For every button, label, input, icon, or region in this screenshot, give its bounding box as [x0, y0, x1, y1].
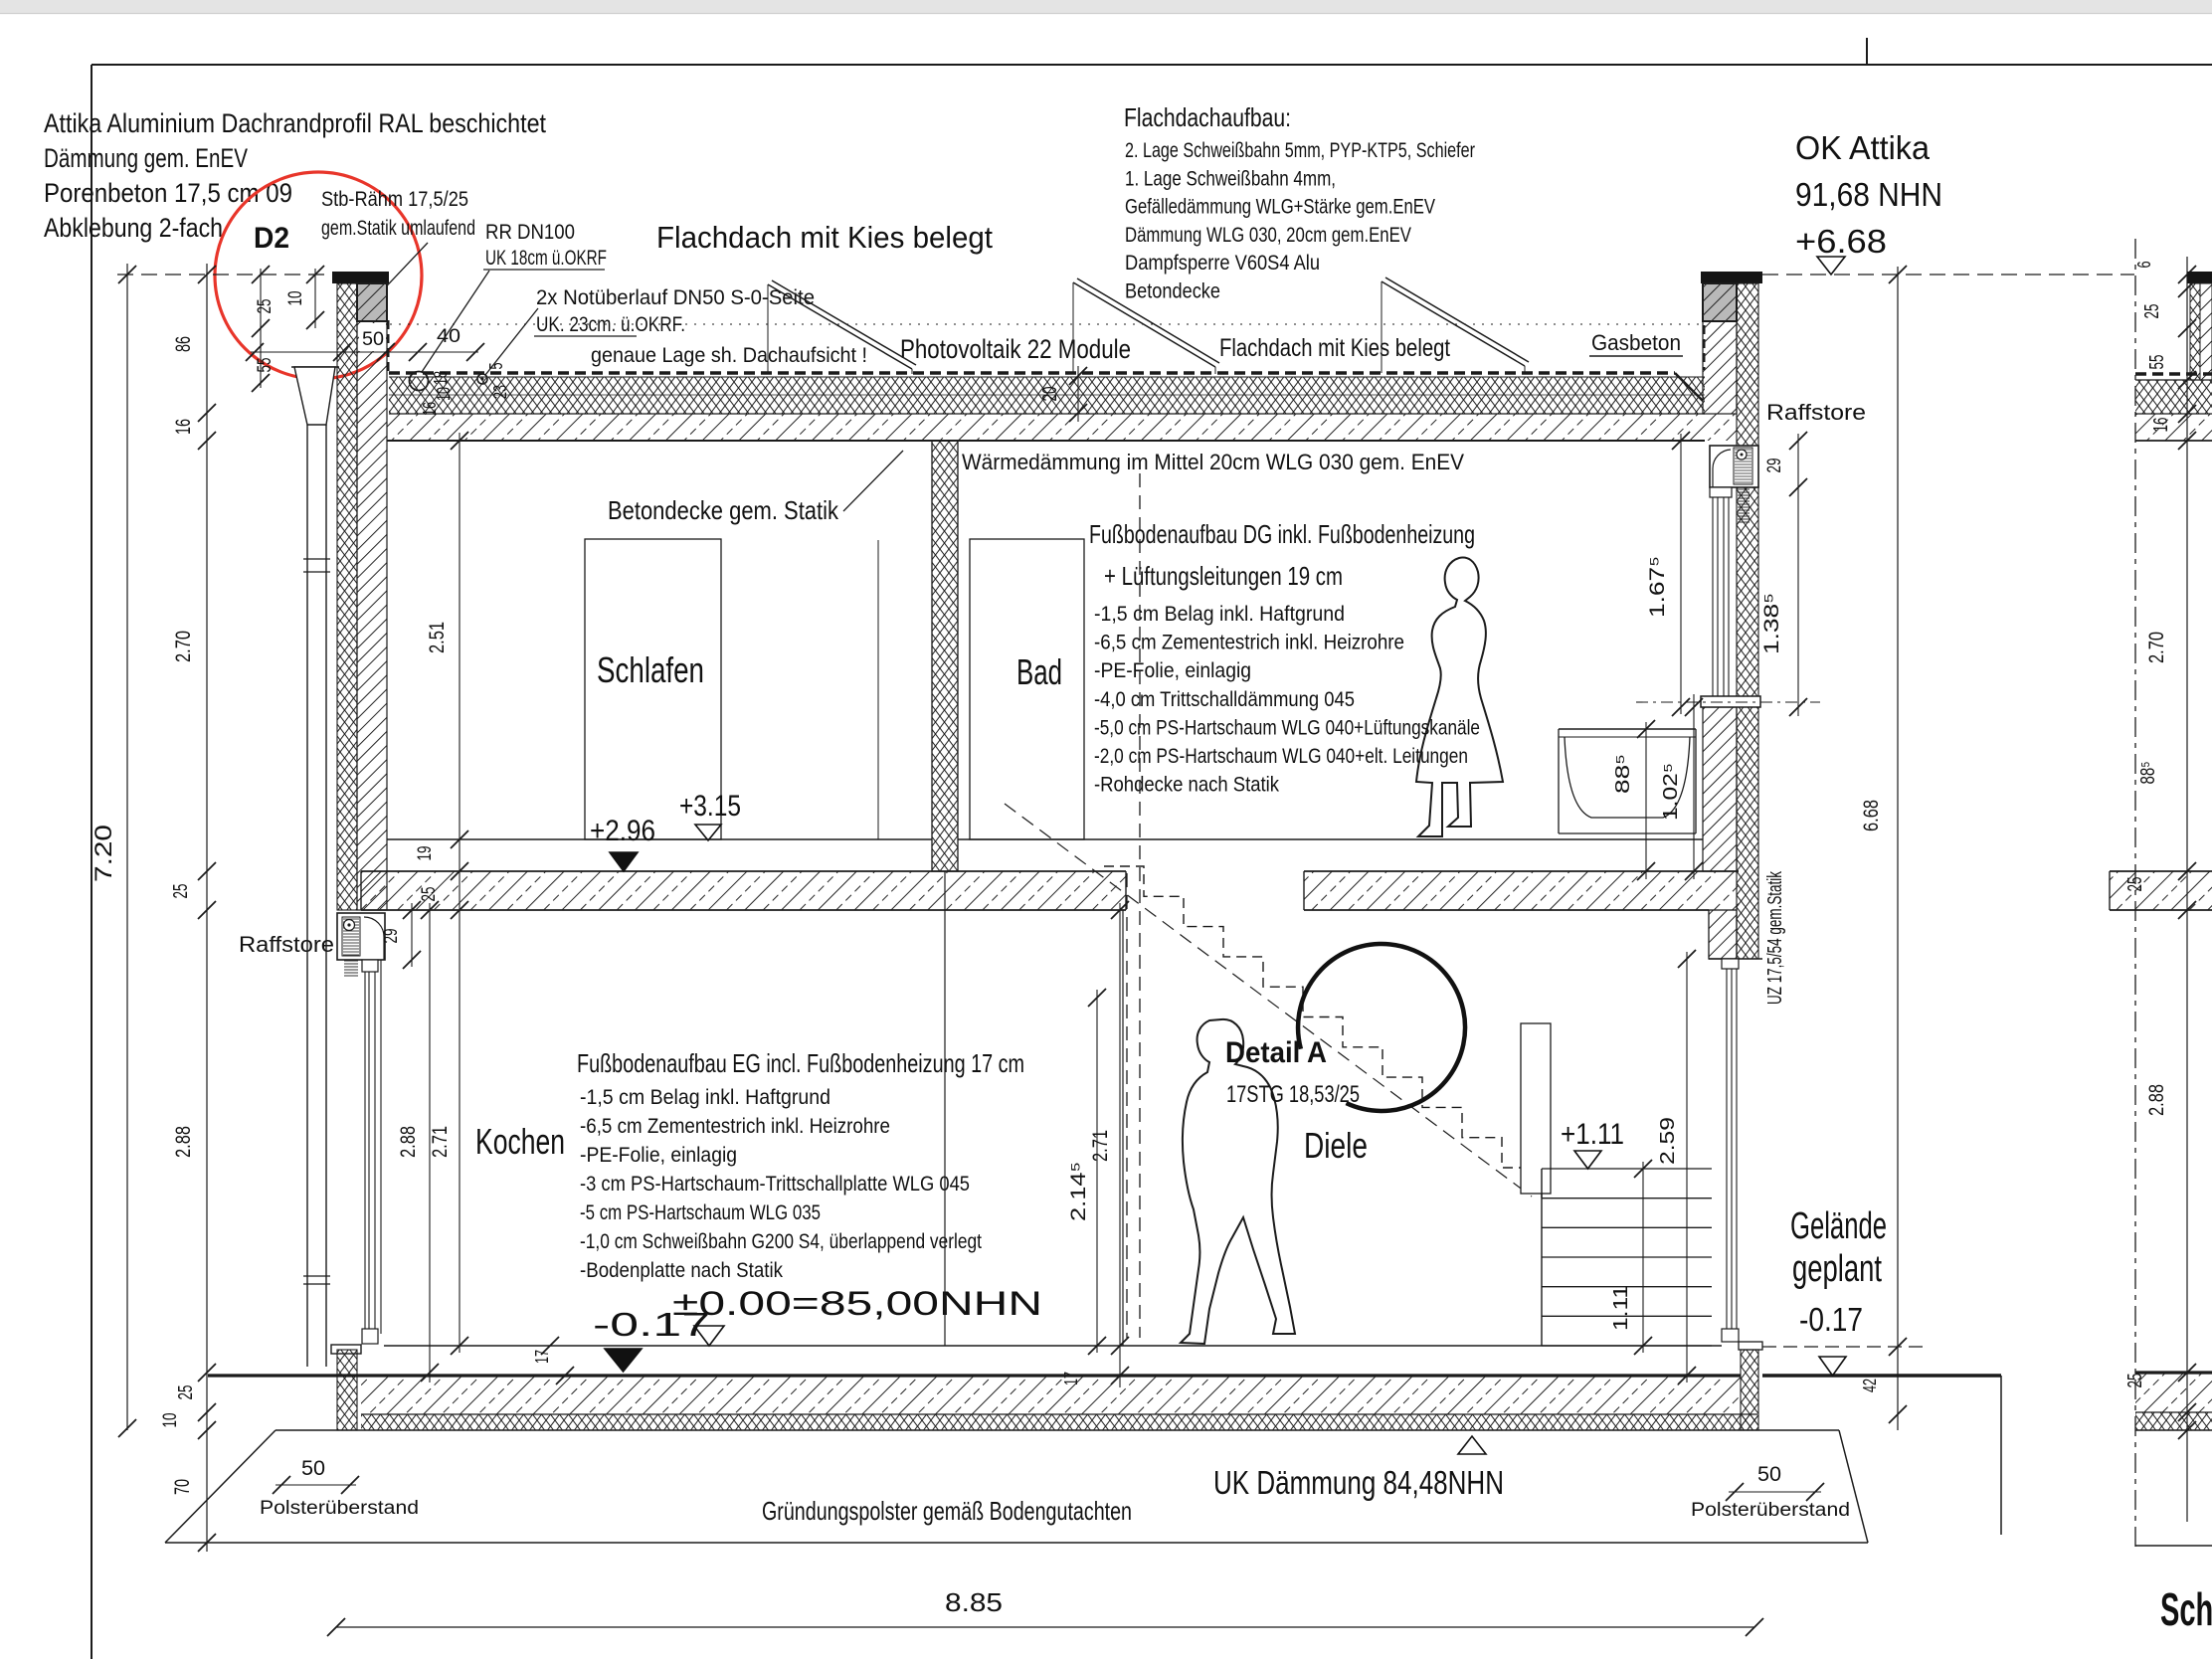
svg-text:10: 10 [160, 1413, 181, 1428]
svg-text:2.88: 2.88 [397, 1126, 420, 1158]
svg-text:50: 50 [362, 329, 384, 350]
svg-text:91,68 NHN: 91,68 NHN [1795, 176, 1942, 213]
svg-text:Abklebung 2-fach: Abklebung 2-fach [44, 213, 223, 243]
svg-text:17: 17 [532, 1350, 552, 1364]
svg-text:UK. 23cm. ü.OKRF.: UK. 23cm. ü.OKRF. [536, 313, 685, 336]
svg-text:2.71: 2.71 [429, 1126, 452, 1158]
svg-text:25: 25 [175, 1385, 197, 1400]
svg-text:Schlafen: Schlafen [597, 649, 704, 690]
svg-text:2.71: 2.71 [1089, 1130, 1112, 1162]
svg-text:+1.11: +1.11 [1561, 1118, 1624, 1151]
svg-text:Flachdachaufbau:: Flachdachaufbau: [1124, 102, 1291, 132]
svg-text:-6,5 cm Zementestrich inkl. He: -6,5 cm Zementestrich inkl. Heizrohre [580, 1114, 890, 1138]
svg-text:UZ 17,5/54 gem.Statik: UZ 17,5/54 gem.Statik [1764, 870, 1786, 1005]
svg-text:Polsterüberstand: Polsterüberstand [260, 1498, 419, 1519]
svg-text:50: 50 [1757, 1463, 1781, 1486]
svg-text:Polsterüberstand: Polsterüberstand [1691, 1500, 1850, 1521]
svg-text:10: 10 [434, 387, 454, 401]
svg-text:2.88: 2.88 [2145, 1084, 2168, 1116]
svg-text:-4,0 cm Trittschalldämmung 045: -4,0 cm Trittschalldämmung 045 [1094, 687, 1355, 711]
svg-text:RR DN100: RR DN100 [485, 221, 575, 244]
svg-text:23: 23 [490, 385, 510, 399]
svg-text:29: 29 [381, 929, 402, 944]
svg-text:-Rohdecke nach Statik: -Rohdecke nach Statik [1094, 773, 1279, 797]
svg-text:-3 cm PS-Hartschaum-Trittschal: -3 cm PS-Hartschaum-Trittschallplatte WL… [580, 1172, 970, 1196]
svg-text:-6,5 cm Zementestrich inkl. He: -6,5 cm Zementestrich inkl. Heizrohre [1094, 631, 1404, 654]
svg-text:55: 55 [255, 358, 276, 373]
svg-text:Photovoltaik 22 Module: Photovoltaik 22 Module [900, 334, 1131, 364]
svg-text:7.20: 7.20 [91, 825, 117, 882]
svg-text:16: 16 [420, 402, 440, 416]
svg-text:Flachdach mit Kies belegt: Flachdach mit Kies belegt [656, 220, 993, 255]
svg-text:Dämmung WLG 030, 20cm gem.EnE: Dämmung WLG 030, 20cm gem.EnEV [1125, 223, 1412, 247]
svg-text:Raffstore: Raffstore [239, 932, 334, 957]
svg-text:Betondecke: Betondecke [1125, 279, 1220, 303]
svg-text:10: 10 [285, 291, 306, 306]
svg-text:-PE-Folie, einlagig: -PE-Folie, einlagig [1094, 658, 1251, 682]
svg-text:6: 6 [2134, 262, 2154, 269]
svg-text:20: 20 [1039, 387, 1061, 402]
svg-text:Fußbodenaufbau EG incl. Fußbod: Fußbodenaufbau EG incl. Fußbodenheizung … [577, 1048, 1024, 1078]
svg-text:Dampfsperre V60S4 Alu: Dampfsperre V60S4 Alu [1125, 251, 1320, 275]
svg-text:-0.17: -0.17 [593, 1306, 710, 1343]
svg-text:±0.00=85,00NHN: ±0.00=85,00NHN [672, 1285, 1042, 1323]
svg-text:Fußbodenaufbau DG inkl. Fußbod: Fußbodenaufbau DG inkl. Fußbodenheizung [1089, 519, 1475, 549]
svg-text:Dämmung gem. EnEV: Dämmung gem. EnEV [44, 143, 248, 173]
svg-text:1. Lage Schweißbahn 4mm,: 1. Lage Schweißbahn 4mm, [1125, 166, 1336, 190]
svg-text:40: 40 [437, 326, 461, 347]
svg-text:geplant: geplant [1792, 1248, 1882, 1290]
svg-text:8.85: 8.85 [945, 1587, 1003, 1617]
svg-text:25: 25 [170, 884, 192, 899]
svg-text:29: 29 [1764, 459, 1785, 473]
svg-text:2.51: 2.51 [426, 622, 449, 653]
svg-text:2.14⁵: 2.14⁵ [1067, 1162, 1090, 1221]
svg-text:Diele: Diele [1304, 1125, 1368, 1166]
svg-text:UK Dämmung 84,48NHN: UK Dämmung 84,48NHN [1213, 1464, 1504, 1501]
svg-text:Kochen: Kochen [475, 1121, 565, 1162]
svg-text:-Bodenplatte nach Statik: -Bodenplatte nach Statik [580, 1258, 783, 1282]
svg-text:86: 86 [172, 336, 195, 352]
svg-text:Betondecke gem. Statik: Betondecke gem. Statik [608, 495, 839, 525]
svg-text:2.70: 2.70 [2145, 632, 2168, 663]
svg-text:UK 18cm ü.OKRF: UK 18cm ü.OKRF [485, 247, 607, 270]
svg-text:-1,0 cm Schweißbahn G200 S4, ü: -1,0 cm Schweißbahn G200 S4, überlappend… [580, 1229, 982, 1253]
svg-text:Gefälledämmung WLG+Stärke gem.: Gefälledämmung WLG+Stärke gem.EnEV [1125, 195, 1436, 219]
svg-text:25: 25 [419, 887, 440, 902]
svg-text:2.88: 2.88 [172, 1126, 195, 1158]
svg-text:5: 5 [486, 363, 506, 370]
svg-text:1.67⁵: 1.67⁵ [1646, 556, 1669, 618]
svg-text:-1,5 cm Belag inkl. Haftgrund: -1,5 cm Belag inkl. Haftgrund [1094, 602, 1345, 626]
svg-text:-PE-Folie, einlagig: -PE-Folie, einlagig [580, 1143, 737, 1167]
svg-text:+2.96: +2.96 [590, 815, 655, 847]
svg-text:88⁵: 88⁵ [1612, 754, 1634, 794]
svg-text:-0.17: -0.17 [1799, 1301, 1863, 1338]
svg-text:genaue Lage sh. Dachaufsicht !: genaue Lage sh. Dachaufsicht ! [591, 344, 867, 367]
svg-text:42: 42 [1860, 1379, 1880, 1392]
svg-text:25: 25 [2141, 304, 2163, 319]
svg-text:Stb-Rähm 17,5/25: Stb-Rähm 17,5/25 [321, 188, 468, 211]
svg-text:50: 50 [301, 1457, 325, 1480]
svg-text:D2: D2 [254, 222, 289, 255]
svg-text:25: 25 [255, 299, 276, 314]
svg-text:-1,5 cm Belag inkl. Haftgrund: -1,5 cm Belag inkl. Haftgrund [580, 1085, 830, 1109]
svg-text:1.38⁵: 1.38⁵ [1760, 593, 1783, 654]
svg-text:Detail A: Detail A [1225, 1036, 1327, 1069]
svg-text:Gelände: Gelände [1790, 1205, 1887, 1247]
svg-text:1.11: 1.11 [1610, 1285, 1632, 1331]
svg-text:Gasbeton: Gasbeton [1591, 330, 1681, 355]
svg-text:17STG 18,53/25: 17STG 18,53/25 [1226, 1081, 1360, 1108]
svg-text:Attika Aluminium Dachrandprofi: Attika Aluminium Dachrandprofil RAL besc… [44, 108, 546, 138]
svg-text:OK Attika: OK Attika [1795, 129, 1931, 166]
svg-text:+6.68: +6.68 [1795, 223, 1887, 260]
svg-text:1.02⁵: 1.02⁵ [1660, 763, 1682, 821]
svg-text:gem.Statik umlaufend: gem.Statik umlaufend [321, 217, 475, 240]
svg-text:2. Lage Schweißbahn 5mm, PYP-K: 2. Lage Schweißbahn 5mm, PYP-KTP5, Schie… [1125, 138, 1475, 162]
svg-text:+3.15: +3.15 [679, 790, 741, 823]
svg-text:Schn: Schn [2160, 1583, 2212, 1635]
svg-text:18: 18 [431, 371, 451, 385]
svg-text:55: 55 [2146, 355, 2168, 370]
svg-text:2x Notüberlauf DN50 S-0-Seite: 2x Notüberlauf DN50 S-0-Seite [536, 286, 815, 309]
svg-text:70: 70 [171, 1479, 194, 1495]
svg-text:Bad: Bad [1016, 651, 1062, 692]
svg-text:16: 16 [172, 419, 195, 435]
svg-text:Raffstore: Raffstore [1766, 400, 1866, 425]
svg-text:-5,0 cm PS-Hartschaum WLG 040+: -5,0 cm PS-Hartschaum WLG 040+Lüftungska… [1094, 715, 1480, 739]
svg-text:88⁵: 88⁵ [2137, 762, 2159, 785]
svg-text:Gründungspolster gemäß Bodengu: Gründungspolster gemäß Bodengutachten [762, 1496, 1132, 1526]
svg-text:Wärmedämmung im Mittel 20cm WL: Wärmedämmung im Mittel 20cm WLG 030 gem.… [962, 450, 1464, 474]
svg-text:2.59: 2.59 [1657, 1117, 1679, 1165]
svg-text:-2,0 cm PS-Hartschaum WLG 040+: -2,0 cm PS-Hartschaum WLG 040+elt. Leitu… [1094, 744, 1468, 768]
svg-text:-5 cm PS-Hartschaum WLG 035: -5 cm PS-Hartschaum WLG 035 [580, 1200, 821, 1224]
svg-text:Flachdach mit Kies belegt: Flachdach mit Kies belegt [1219, 334, 1450, 362]
svg-text:6.68: 6.68 [1860, 800, 1883, 831]
svg-text:19: 19 [415, 846, 436, 861]
svg-text:2.70: 2.70 [172, 631, 195, 662]
